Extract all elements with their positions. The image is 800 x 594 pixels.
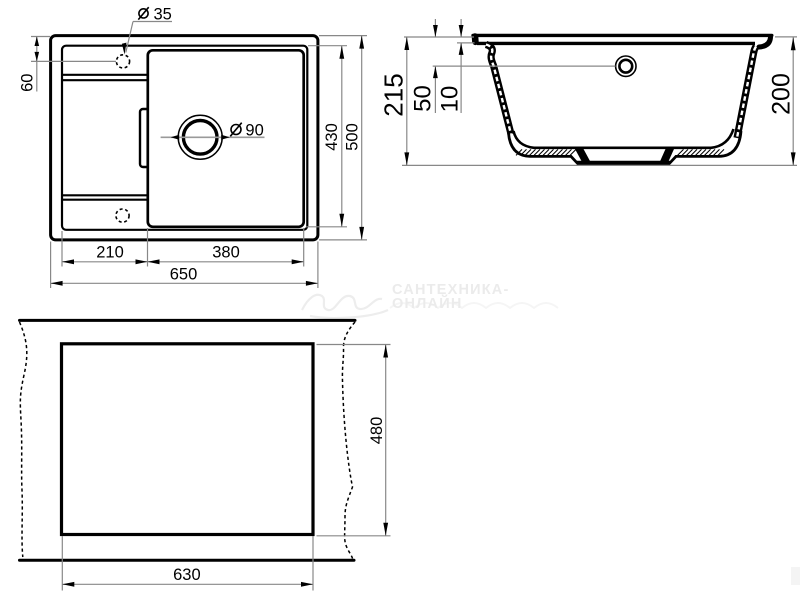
svg-text:35: 35: [154, 5, 172, 23]
svg-text:10: 10: [437, 86, 464, 113]
svg-text:500: 500: [344, 123, 362, 151]
svg-text:430: 430: [323, 123, 341, 151]
svg-text:200: 200: [767, 73, 795, 115]
svg-text:50: 50: [409, 85, 436, 112]
svg-text:ОНЛАЙН: ОНЛАЙН: [392, 294, 463, 312]
svg-text:630: 630: [173, 566, 201, 584]
svg-text:90: 90: [245, 122, 263, 140]
svg-text:480: 480: [368, 417, 386, 445]
svg-text:650: 650: [170, 266, 198, 284]
svg-text:215: 215: [378, 73, 408, 116]
svg-text:60: 60: [18, 74, 36, 92]
svg-text:210: 210: [96, 244, 124, 262]
svg-text:380: 380: [212, 244, 240, 262]
